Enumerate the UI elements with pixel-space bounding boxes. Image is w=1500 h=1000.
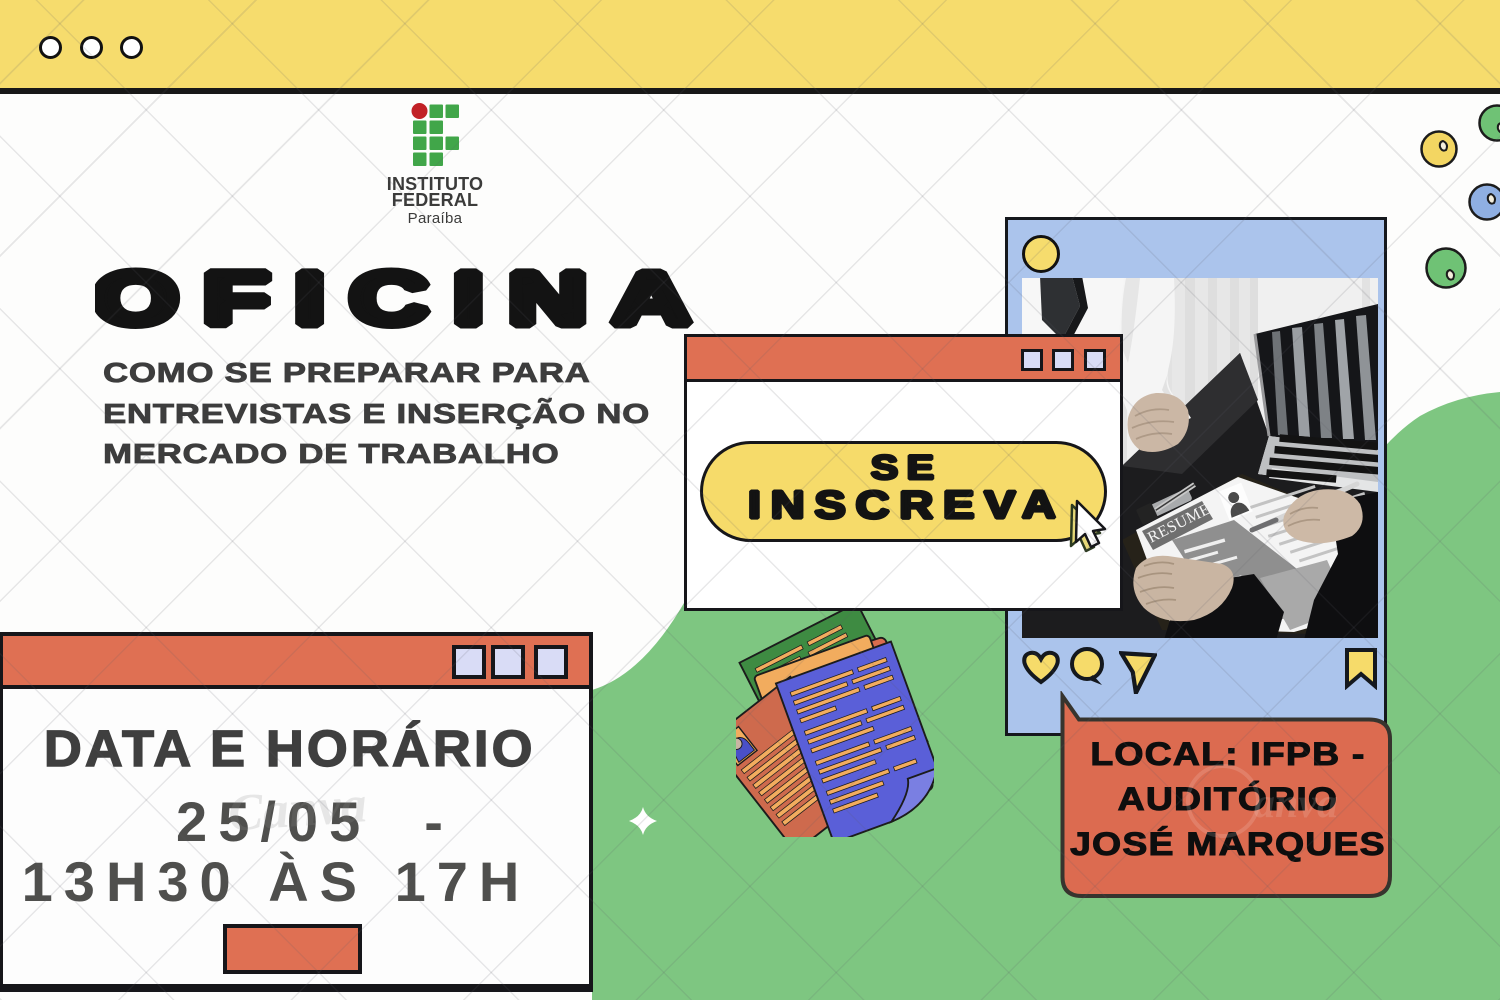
svg-text:OFICINA: OFICINA xyxy=(95,260,716,340)
svg-text:INSCREVA: INSCREVA xyxy=(748,484,1066,527)
svg-text:SE: SE xyxy=(871,448,943,486)
